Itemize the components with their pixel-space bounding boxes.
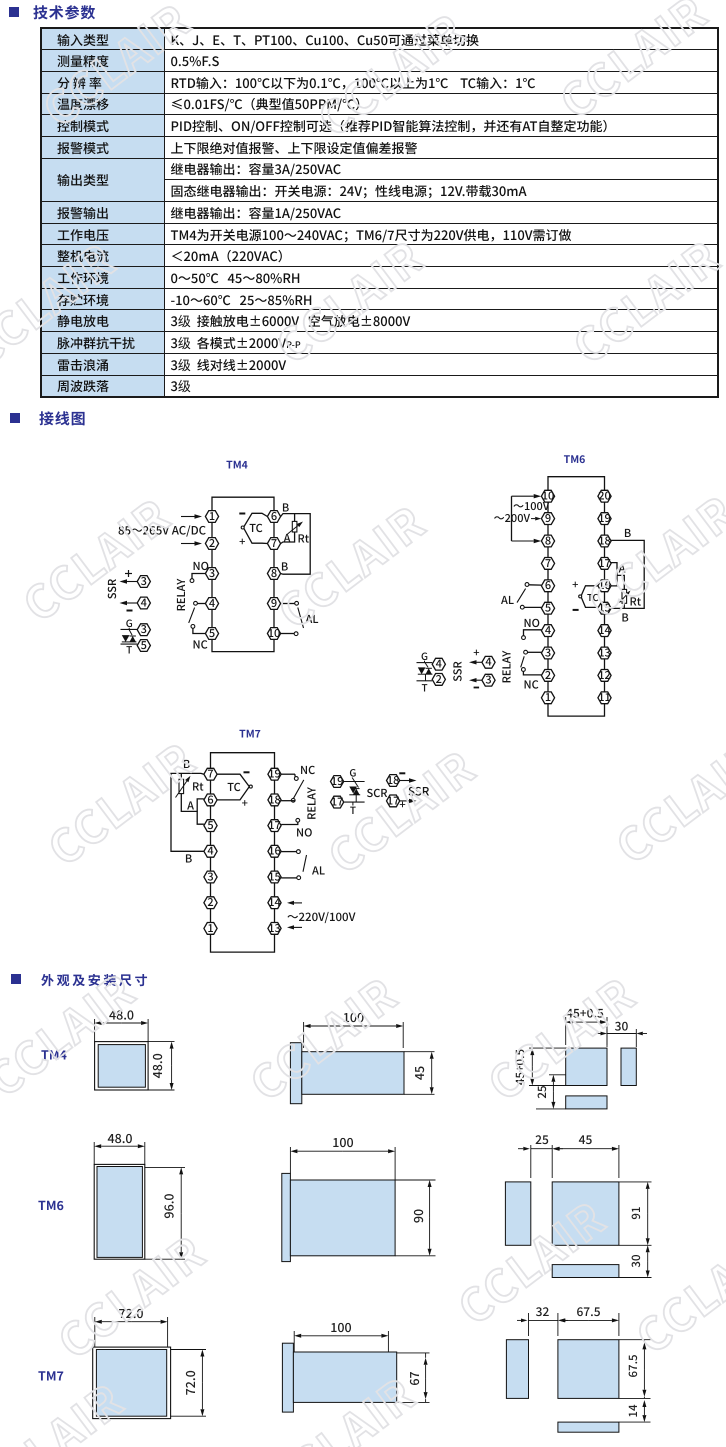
- svg-text:30: 30: [628, 1254, 644, 1268]
- svg-text:+: +: [473, 645, 479, 661]
- svg-text:TM6: TM6: [564, 452, 586, 467]
- svg-text:T: T: [421, 680, 427, 695]
- svg-text:RELAY: RELAY: [304, 786, 320, 820]
- svg-text:+: +: [242, 795, 248, 811]
- svg-text:45: 45: [579, 1131, 593, 1148]
- svg-text:TM6: TM6: [38, 1195, 64, 1214]
- svg-text:A: A: [187, 798, 194, 814]
- svg-text:48.0: 48.0: [107, 1128, 132, 1147]
- svg-text:AL: AL: [501, 592, 514, 608]
- svg-text:17: 17: [331, 794, 344, 810]
- svg-text:SSR: SSR: [450, 661, 466, 681]
- svg-text:G: G: [421, 648, 428, 663]
- svg-text:NC: NC: [193, 637, 208, 653]
- svg-text:Rt: Rt: [298, 531, 310, 547]
- svg-text:TC: TC: [249, 520, 263, 536]
- svg-text:4: 4: [141, 594, 147, 610]
- svg-text:NC: NC: [300, 762, 315, 778]
- svg-text:100: 100: [330, 1317, 351, 1336]
- svg-text:5: 5: [141, 637, 147, 653]
- svg-text:B: B: [282, 500, 289, 516]
- svg-text:G: G: [126, 615, 133, 630]
- svg-text:3: 3: [141, 621, 147, 637]
- svg-text:19: 19: [331, 773, 344, 789]
- svg-text:90: 90: [408, 1209, 427, 1223]
- svg-text:14: 14: [625, 1404, 641, 1418]
- svg-text:72.0: 72.0: [180, 1370, 199, 1395]
- svg-text:25: 25: [535, 1131, 549, 1148]
- svg-text:TC: TC: [227, 779, 241, 795]
- svg-text:+: +: [239, 534, 245, 550]
- svg-text:96.0: 96.0: [159, 1193, 178, 1218]
- svg-text:NO: NO: [193, 558, 209, 574]
- svg-text:TM4: TM4: [226, 458, 248, 473]
- svg-text:67.5: 67.5: [576, 1303, 600, 1320]
- svg-text:45: 45: [409, 1066, 428, 1080]
- svg-text:RELAY: RELAY: [499, 650, 515, 684]
- svg-text:4: 4: [485, 654, 491, 670]
- svg-text:2: 2: [436, 671, 442, 687]
- svg-text:～220V/100V: ～220V/100V: [287, 909, 356, 925]
- svg-text:3: 3: [485, 672, 491, 688]
- svg-text:NC: NC: [524, 677, 539, 693]
- svg-text:A: A: [284, 530, 291, 546]
- svg-text:TM7: TM7: [239, 727, 261, 742]
- svg-text:～200V: ～200V: [494, 510, 531, 526]
- svg-text:RELAY: RELAY: [173, 578, 189, 612]
- svg-text:32: 32: [536, 1303, 550, 1320]
- svg-text:B: B: [185, 851, 192, 867]
- svg-text:48.0: 48.0: [147, 1053, 166, 1078]
- svg-text:NO: NO: [524, 615, 540, 631]
- svg-text:4: 4: [436, 656, 442, 672]
- svg-text:G: G: [349, 765, 356, 780]
- svg-text:3: 3: [141, 573, 147, 589]
- svg-text:100: 100: [332, 1132, 353, 1151]
